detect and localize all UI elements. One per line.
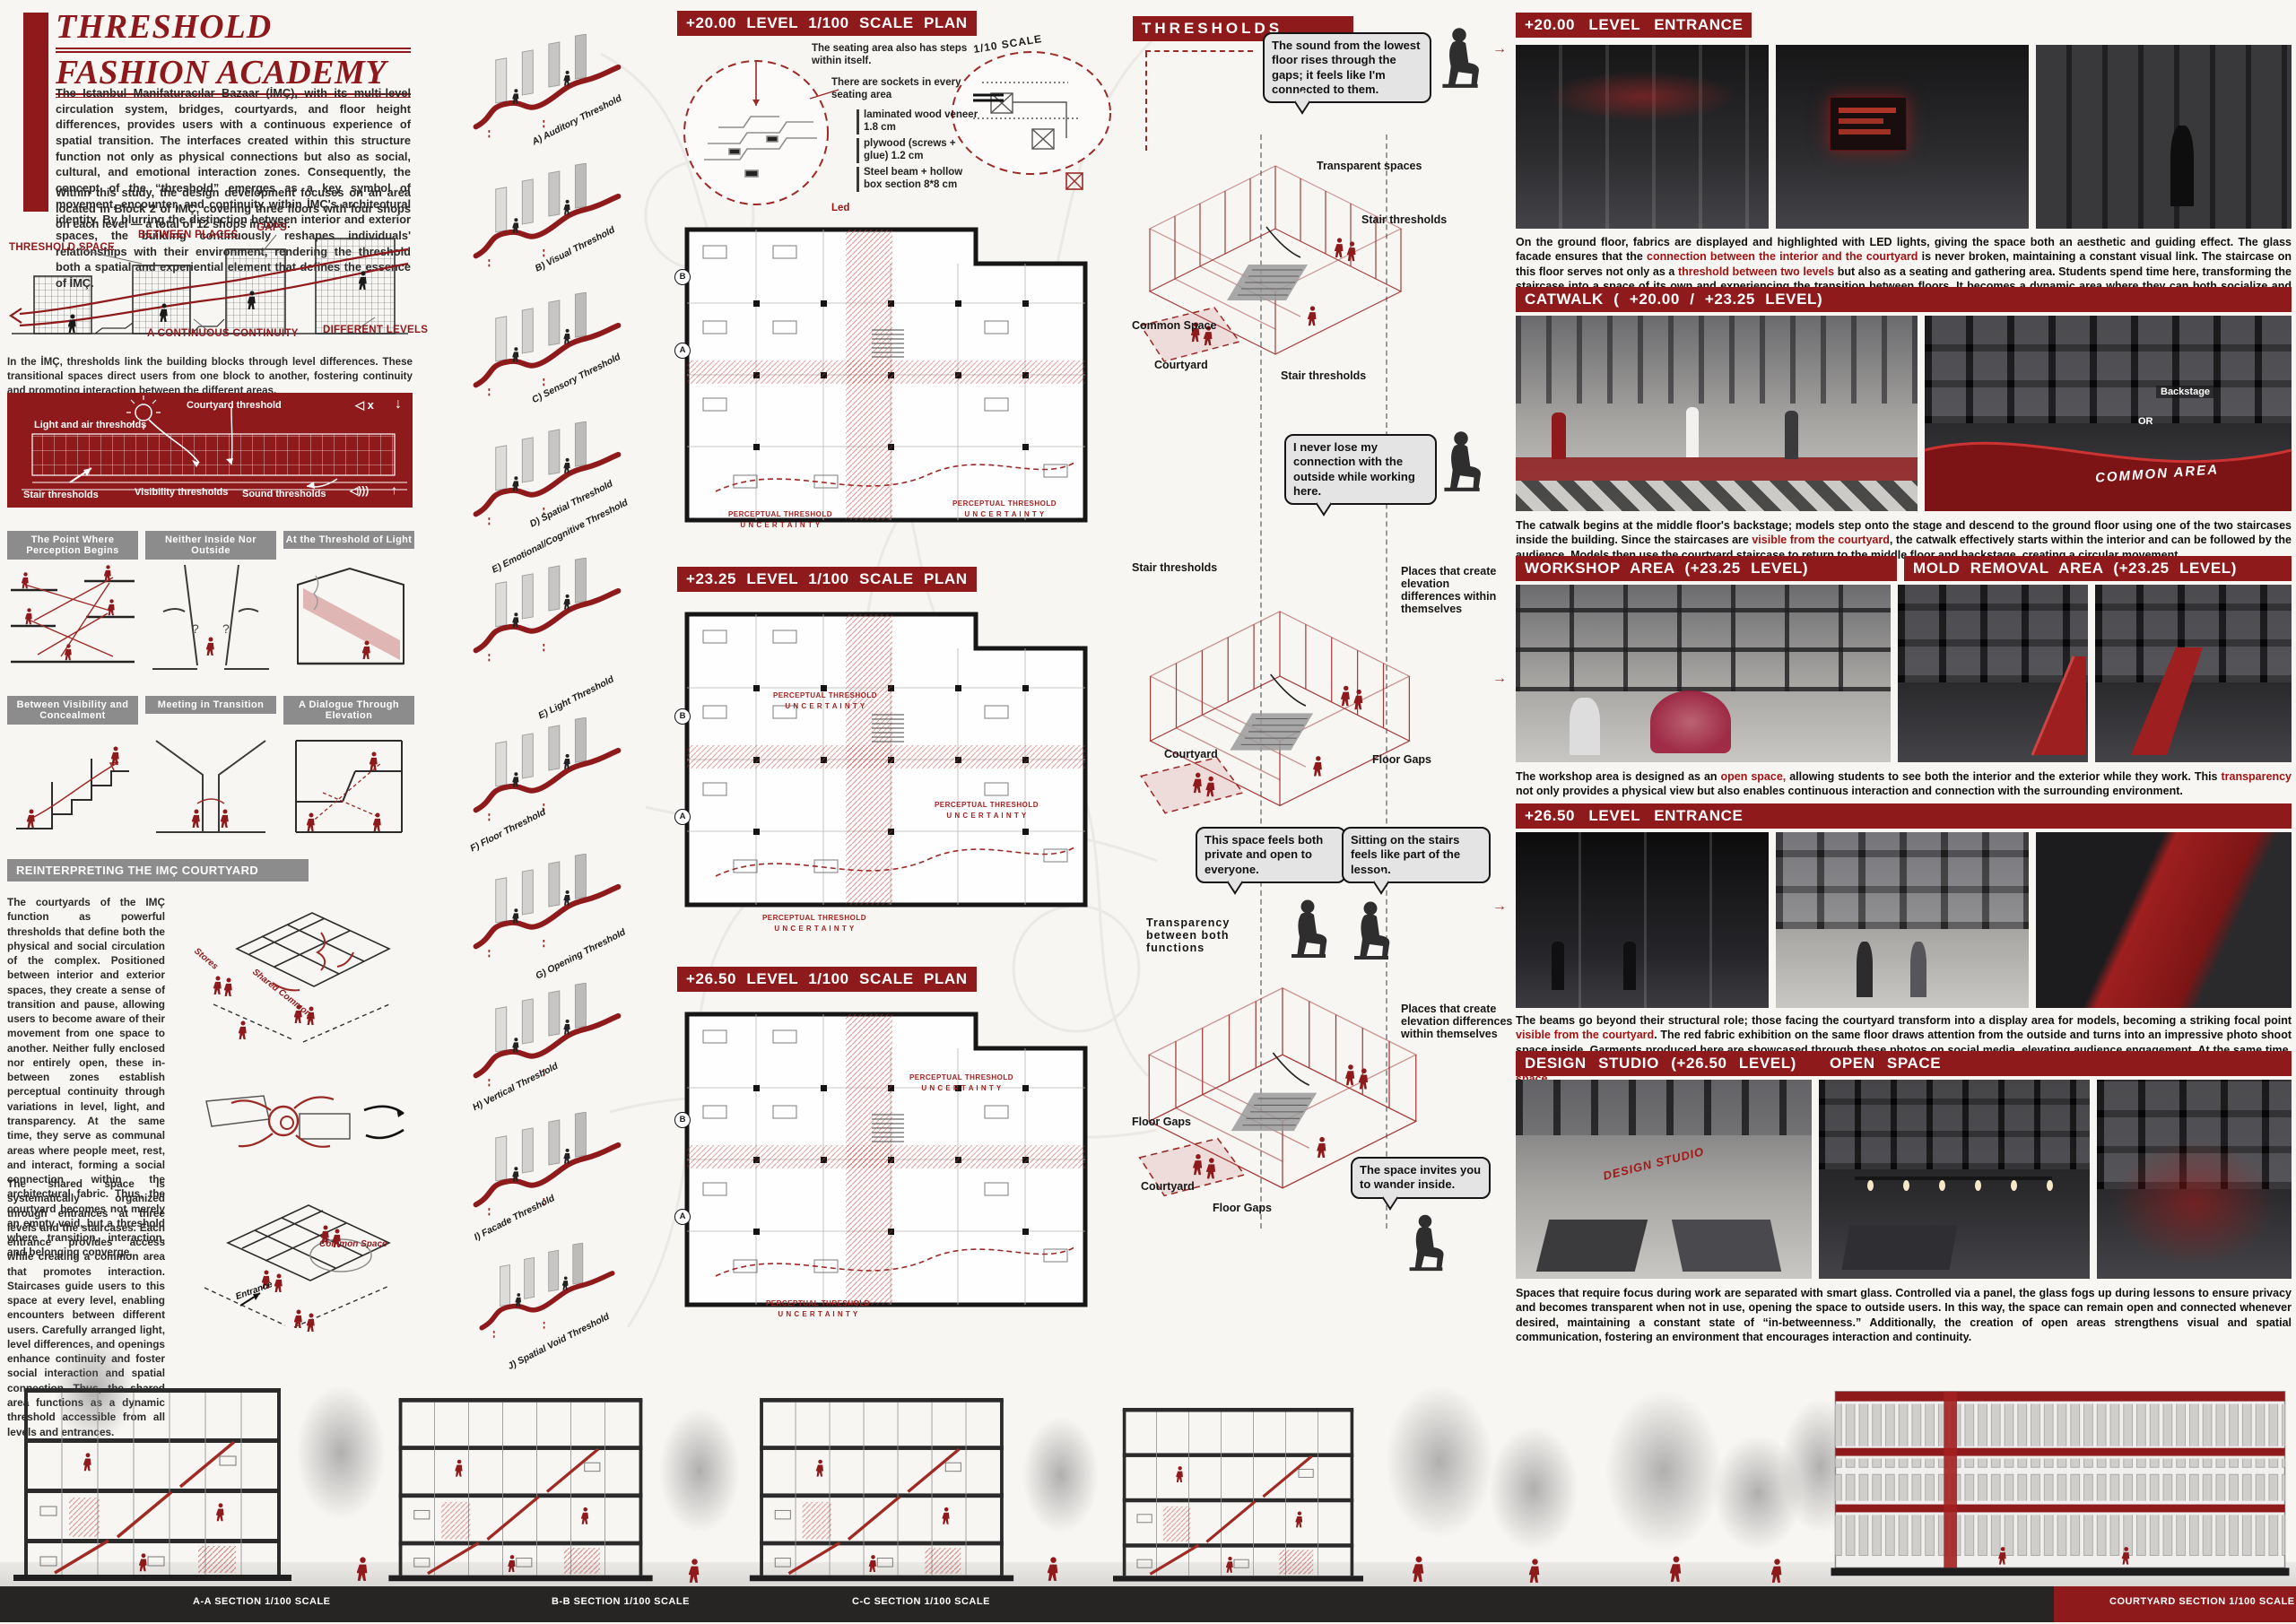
quote-bubble-1: The sound from the lowest floor rises th…: [1263, 32, 1431, 103]
presentation-board: THRESHOLD FASHION ACADEMY The Istanbul M…: [0, 0, 2296, 1624]
plan1-drawing: [680, 213, 1092, 536]
quote-bubble-3: This space feels both private and open t…: [1196, 827, 1346, 883]
label-elevation-places: Places that create elevation differences…: [1401, 565, 1507, 615]
photo-label-backstage: Backstage: [2156, 386, 2214, 398]
quote-bubble-5: The space invites you to wander inside.: [1351, 1157, 1491, 1199]
sketch-label-common-space: Common Space: [319, 1239, 387, 1249]
label-elevation-places: Places that create elevation differences…: [1401, 1003, 1518, 1040]
label-stair-thresholds: Stair thresholds: [1132, 561, 1217, 574]
photo-design-1: DESIGN STUDIO: [1516, 1080, 1812, 1279]
perceptual-label: PERCEPTUAL THRESHOLDU N C E R T A I N T …: [761, 913, 868, 934]
photo-mold-2: [2095, 585, 2292, 762]
page-title-line1: THRESHOLD: [56, 7, 411, 47]
section-marker-a: A: [674, 1209, 691, 1225]
perceptual-label: PERCEPTUAL THRESHOLDU N C E R T A I N T …: [726, 509, 834, 531]
section-marker-b: B: [674, 708, 691, 725]
photo-design-2: [1819, 1080, 2090, 1279]
ground-figure: [689, 1559, 700, 1584]
band-label-visibility: Visibility thresholds: [135, 487, 228, 498]
entrance26-header: +26.50 LEVEL ENTRANCE: [1516, 803, 2292, 829]
concept-label-levels: DIFFERENT LEVELS: [323, 325, 428, 335]
quote-bubble-4: Sitting on the stairs feels like part of…: [1342, 827, 1491, 883]
section-extra-drawing: [1101, 1392, 1375, 1585]
photo-label-design-studio: DESIGN STUDIO: [1602, 1144, 1706, 1183]
photo-catwalk-1: [1516, 316, 1918, 511]
photo-entrance20-1: [1516, 45, 1769, 229]
courtyard-sketch-3: Common Space Entrance: [187, 1180, 413, 1342]
ground-figure: [1529, 1559, 1541, 1584]
label-floor-gaps: Floor Gaps: [1213, 1202, 1272, 1214]
perceptual-label: PERCEPTUAL THRESHOLDU N C E R T A I N T …: [933, 800, 1040, 821]
spec-wood-veneer: laminated wood veneer 1.8 cm: [857, 109, 980, 135]
led-sign: [1830, 97, 1907, 151]
flow-arrow-right: →: [1492, 899, 1507, 915]
mute-icon: ◁ x: [355, 398, 374, 413]
title-block: THRESHOLD FASHION ACADEMY: [56, 7, 411, 98]
concept-label-gaps: GAPS: [257, 222, 287, 233]
compass-marker: [1065, 172, 1083, 190]
photo-entrance26-3: [2036, 832, 2292, 1008]
label-stair-thresholds: Stair thresholds: [1361, 213, 1447, 226]
label-stair-thresholds: Stair thresholds: [1281, 369, 1366, 382]
ground-figure: [1670, 1556, 1683, 1583]
concept-caption: In the İMÇ, thresholds link the building…: [7, 355, 413, 398]
section-cc-label: C-C SECTION 1/100 SCALE: [852, 1596, 990, 1607]
concept-label-between-places: BETWEEN PLACES: [138, 230, 239, 240]
title-rule: [56, 48, 411, 49]
section-aa-label: A-A SECTION 1/100 SCALE: [193, 1596, 331, 1607]
photo-mold-1: [1898, 585, 2088, 762]
band-label-stair: Stair thresholds: [23, 490, 99, 500]
plan1-header: +20.00 LEVEL 1/100 SCALE PLAN: [677, 11, 977, 36]
paragraph-smart-glass: Spaces that require focus during work ar…: [1516, 1286, 2292, 1344]
section-marker-a: A: [674, 809, 691, 825]
concept-label-threshold-space: THRESHOLD SPACE: [9, 242, 115, 253]
band-label-light-air: Light and air thresholds: [34, 420, 146, 430]
panel-sketch-6: [283, 723, 414, 848]
design-studio-header: DESIGN STUDIO (+26.50 LEVEL): [1516, 1051, 1830, 1076]
courtyard-elevation-drawing: [1828, 1383, 2292, 1585]
panel-sketch-3: [283, 558, 414, 683]
spec-plywood: plywood (screws + glue) 1.2 cm: [857, 138, 980, 163]
mold-header: MOLD REMOVAL AREA (+23.25 LEVEL): [1904, 556, 2292, 581]
plan1-detail-annotations: The seating area also has steps within i…: [677, 43, 1117, 213]
panel-title-1: The Point Where Perception Begins: [7, 531, 138, 560]
label-transparent-spaces: Transparent spaces: [1317, 160, 1422, 172]
speaker-icon: ◁))): [350, 484, 369, 497]
panel-title-4: Between Visibility and Concealment: [7, 696, 138, 725]
panel-sketch-1: [7, 558, 138, 683]
panel-title-3: At the Threshold of Light: [283, 531, 414, 549]
plan2-header: +23.25 LEVEL 1/100 SCALE PLAN: [677, 567, 977, 592]
spec-steel-beam: Steel beam + hollow box section 8*8 cm: [857, 167, 980, 192]
label-courtyard: Courtyard: [1154, 359, 1208, 371]
perceptual-label: PERCEPTUAL THRESHOLDU N C E R T A I N T …: [908, 1073, 1015, 1094]
svg-text:?: ?: [192, 621, 199, 636]
section-marker-a: A: [674, 343, 691, 359]
ground-bar: [0, 1586, 2296, 1622]
section-aa-drawing: [13, 1370, 291, 1585]
seated-person: [1431, 25, 1487, 102]
plan2-drawing: [680, 603, 1092, 916]
photo-catwalk-2: Backstage OR COMMON AREA: [1925, 316, 2292, 511]
band-label-sound: Sound thresholds: [242, 489, 326, 499]
photo-entrance20-3: [2036, 45, 2292, 229]
panel-sketch-5: [145, 723, 276, 848]
panel-title-5: Meeting in Transition: [145, 696, 276, 714]
seated-person: [1399, 1212, 1451, 1284]
concept-sketch: THRESHOLD SPACE BETWEEN PLACES GAPS A CO…: [7, 221, 413, 353]
photo-entrance26-1: [1516, 832, 1769, 1008]
title-accent-bar: [23, 13, 48, 212]
label-floor-gaps: Floor Gaps: [1132, 1116, 1191, 1128]
panel-title-6: A Dialogue Through Elevation: [283, 696, 414, 725]
panel-sketch-2: ??: [145, 558, 276, 683]
section-courtyard-label: COURTYARD SECTION 1/100 SCALE: [2109, 1596, 2295, 1607]
flow-arrow-right: →: [1492, 671, 1507, 687]
ground-figure: [1771, 1559, 1783, 1584]
photo-workshop: [1516, 585, 1891, 762]
entrance20-header: +20.00 LEVEL ENTRANCE: [1516, 13, 1752, 38]
courtyard-sketch-1: Stores Shared Common: [187, 897, 413, 1076]
plan3-header: +26.50 LEVEL 1/100 SCALE PLAN: [677, 967, 977, 992]
iso-diagram-2: [1132, 574, 1428, 834]
photo-entrance20-2: [1776, 45, 2029, 229]
flow-arrow-right: →: [1492, 41, 1507, 57]
reinterpret-title: REINTERPRETING THE IMÇ COURTYARD: [7, 859, 309, 881]
section-marker-b: B: [674, 269, 691, 285]
ground-figure: [357, 1557, 369, 1582]
concept-label-continuity: A CONTINUOUS CONTINUITY: [147, 328, 299, 339]
seated-person: [1433, 429, 1489, 506]
workshop-header: WORKSHOP AREA (+23.25 LEVEL): [1516, 556, 1897, 581]
note-sockets: There are sockets in every seating area: [831, 77, 975, 102]
perceptual-label: PERCEPTUAL THRESHOLDU N C E R T A I N T …: [764, 1298, 872, 1320]
ground-figure: [1048, 1557, 1059, 1582]
photo-open-space: [2097, 1080, 2292, 1279]
svg-text:?: ?: [222, 621, 230, 636]
note-seating-steps: The seating area also has steps within i…: [812, 43, 973, 68]
threshold-types-band: Courtyard threshold Light and air thresh…: [7, 393, 413, 508]
flow-line: [1145, 50, 1253, 52]
label-floor-gaps: Floor Gaps: [1372, 753, 1431, 766]
photo-label-or: OR: [2138, 416, 2153, 427]
courtyard-sketch-2: [187, 1083, 413, 1160]
section-bb-drawing: [384, 1381, 657, 1585]
ground-figure: [1413, 1556, 1425, 1583]
band-label-courtyard: Courtyard threshold: [187, 400, 282, 411]
perceptual-label: PERCEPTUAL THRESHOLDU N C E R T A I N T …: [951, 499, 1058, 520]
panel-title-2: Neither Inside Nor Outside: [145, 531, 276, 560]
section-marker-b: B: [674, 1112, 691, 1128]
label-courtyard: Courtyard: [1141, 1180, 1195, 1193]
perceptual-label: PERCEPTUAL THRESHOLDU N C E R T A I N T …: [771, 690, 879, 712]
section-bb-label: B-B SECTION 1/100 SCALE: [552, 1596, 690, 1607]
open-space-header: OPEN SPACE: [1821, 1051, 2292, 1076]
plan3-drawing: [680, 1003, 1092, 1316]
paragraph-workshop: The workshop area is designed as an open…: [1516, 769, 2292, 799]
arrow-up-icon: ↑: [391, 482, 397, 497]
label-common-space: Common Space: [1132, 319, 1216, 332]
photo-entrance26-2: [1776, 832, 2029, 1008]
section-cc-drawing: [743, 1381, 1021, 1585]
label-courtyard: Courtyard: [1164, 748, 1218, 760]
catwalk-header: CATWALK ( +20.00 / +23.25 LEVEL): [1516, 287, 2292, 312]
quote-bubble-2: I never lose my connection with the outs…: [1284, 434, 1437, 505]
panel-sketch-4: [7, 723, 138, 848]
arrow-down-icon: ↓: [395, 396, 402, 413]
